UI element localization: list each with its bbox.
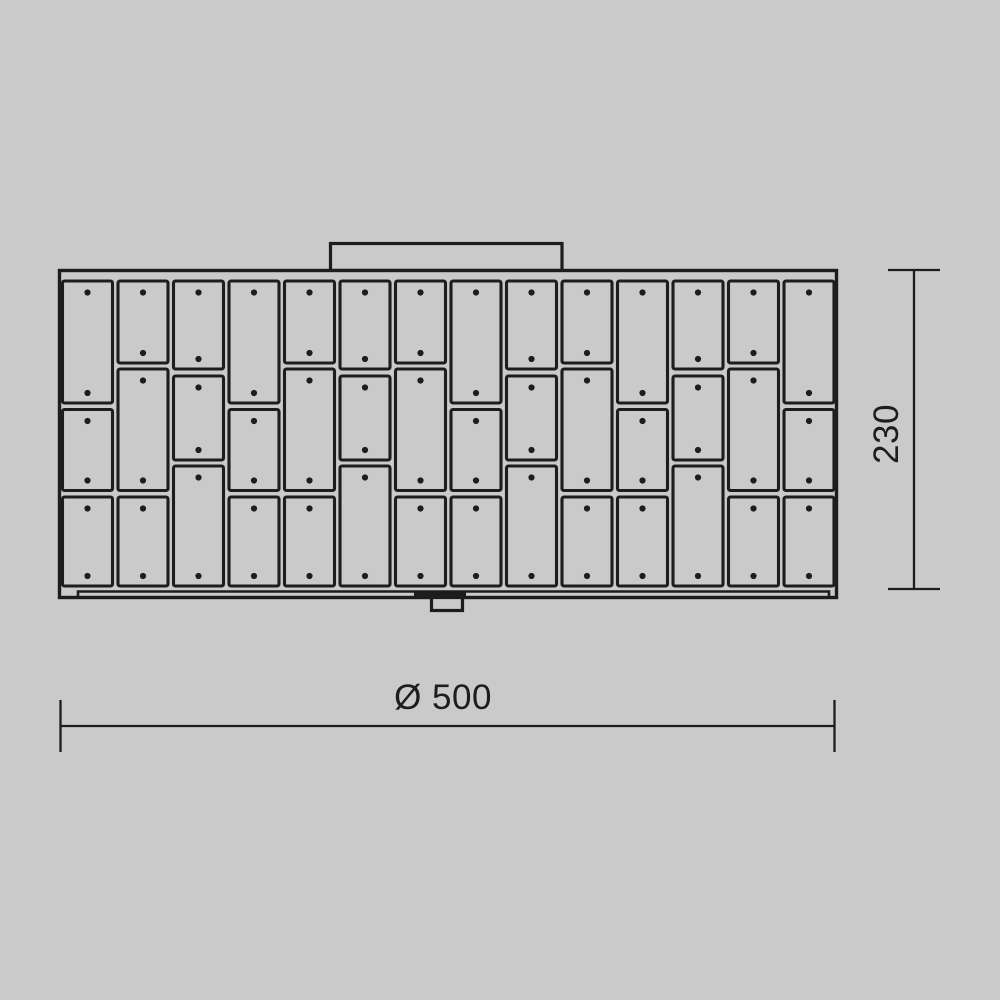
screw-dot bbox=[584, 505, 590, 511]
screw-dot bbox=[584, 289, 590, 295]
screw-dot bbox=[195, 356, 201, 362]
panel bbox=[340, 466, 390, 586]
screw-dot bbox=[362, 447, 368, 453]
screw-dot bbox=[806, 289, 812, 295]
screw-dot bbox=[528, 356, 534, 362]
screw-dot bbox=[695, 384, 701, 390]
screw-dot bbox=[140, 573, 146, 579]
drawing-canvas: 230 Ø 500 bbox=[0, 0, 1000, 1000]
screw-dot bbox=[639, 418, 645, 424]
screw-dot bbox=[806, 477, 812, 483]
dimension-drawing: 230 Ø 500 bbox=[0, 0, 1000, 1000]
screw-dot bbox=[195, 384, 201, 390]
screw-dot bbox=[750, 377, 756, 383]
panel bbox=[285, 369, 335, 491]
screw-dot bbox=[140, 477, 146, 483]
screw-dot bbox=[806, 573, 812, 579]
screw-dot bbox=[695, 356, 701, 362]
screw-dot bbox=[417, 289, 423, 295]
panel bbox=[618, 281, 668, 403]
screw-dot bbox=[306, 350, 312, 356]
screw-dot bbox=[195, 289, 201, 295]
screw-dot bbox=[84, 289, 90, 295]
screw-dot bbox=[473, 418, 479, 424]
screw-dot bbox=[473, 573, 479, 579]
panel bbox=[729, 369, 779, 491]
screw-dot bbox=[750, 289, 756, 295]
screw-dot bbox=[417, 350, 423, 356]
screw-dot bbox=[695, 474, 701, 480]
screw-dot bbox=[195, 573, 201, 579]
screw-dot bbox=[806, 390, 812, 396]
height-dimension: 230 bbox=[867, 270, 940, 589]
screw-dot bbox=[584, 573, 590, 579]
panel bbox=[451, 281, 501, 403]
screw-dot bbox=[473, 505, 479, 511]
screw-dot bbox=[584, 377, 590, 383]
screw-dot bbox=[417, 505, 423, 511]
width-dimension: Ø 500 bbox=[61, 678, 835, 752]
screw-dot bbox=[251, 418, 257, 424]
screw-dot bbox=[251, 289, 257, 295]
screw-dot bbox=[84, 505, 90, 511]
panel bbox=[174, 466, 224, 586]
screw-dot bbox=[306, 289, 312, 295]
screw-dot bbox=[584, 350, 590, 356]
screw-dot bbox=[639, 477, 645, 483]
screw-dot bbox=[750, 505, 756, 511]
screw-dot bbox=[806, 418, 812, 424]
screw-dot bbox=[140, 377, 146, 383]
screw-dot bbox=[251, 390, 257, 396]
screw-dot bbox=[584, 477, 590, 483]
screw-dot bbox=[140, 350, 146, 356]
screw-dot bbox=[528, 289, 534, 295]
mounting-bracket bbox=[331, 244, 563, 271]
screw-dot bbox=[695, 447, 701, 453]
screw-dot bbox=[528, 384, 534, 390]
screw-dot bbox=[362, 474, 368, 480]
screw-dot bbox=[417, 573, 423, 579]
panel bbox=[396, 369, 446, 491]
panel bbox=[562, 369, 612, 491]
screw-dot bbox=[84, 573, 90, 579]
screw-dot bbox=[251, 505, 257, 511]
panel bbox=[784, 281, 834, 403]
screw-dot bbox=[806, 505, 812, 511]
screw-dot bbox=[306, 573, 312, 579]
fixture-front-view bbox=[60, 244, 837, 611]
width-dimension-label: Ø 500 bbox=[394, 678, 492, 717]
screw-dot bbox=[528, 474, 534, 480]
screw-dot bbox=[84, 477, 90, 483]
screw-dot bbox=[473, 477, 479, 483]
screw-dot bbox=[84, 390, 90, 396]
screw-dot bbox=[528, 447, 534, 453]
screw-dot bbox=[695, 289, 701, 295]
screw-dot bbox=[750, 477, 756, 483]
panel bbox=[673, 466, 723, 586]
screw-dot bbox=[362, 384, 368, 390]
screw-dot bbox=[251, 477, 257, 483]
screw-dot bbox=[750, 573, 756, 579]
panel bbox=[118, 369, 168, 491]
screw-dot bbox=[84, 418, 90, 424]
screw-dot bbox=[140, 289, 146, 295]
screw-dot bbox=[362, 356, 368, 362]
screw-dot bbox=[417, 477, 423, 483]
screw-dot bbox=[639, 390, 645, 396]
screw-dot bbox=[417, 377, 423, 383]
screw-dot bbox=[140, 505, 146, 511]
screw-dot bbox=[473, 289, 479, 295]
screw-dot bbox=[750, 350, 756, 356]
bottom-tab bbox=[432, 598, 463, 611]
screw-dot bbox=[528, 573, 534, 579]
screw-dot bbox=[306, 377, 312, 383]
screw-dot bbox=[473, 390, 479, 396]
screw-dot bbox=[639, 289, 645, 295]
screw-dot bbox=[195, 447, 201, 453]
screw-dot bbox=[362, 573, 368, 579]
screw-dot bbox=[362, 289, 368, 295]
panel bbox=[229, 281, 279, 403]
height-dimension-label: 230 bbox=[867, 404, 906, 464]
screw-dot bbox=[639, 505, 645, 511]
screw-dot bbox=[306, 505, 312, 511]
panel bbox=[507, 466, 557, 586]
screw-dot bbox=[639, 573, 645, 579]
screw-dot bbox=[195, 474, 201, 480]
screw-dot bbox=[695, 573, 701, 579]
screw-dot bbox=[306, 477, 312, 483]
screw-dot bbox=[251, 573, 257, 579]
panel bbox=[63, 281, 113, 403]
